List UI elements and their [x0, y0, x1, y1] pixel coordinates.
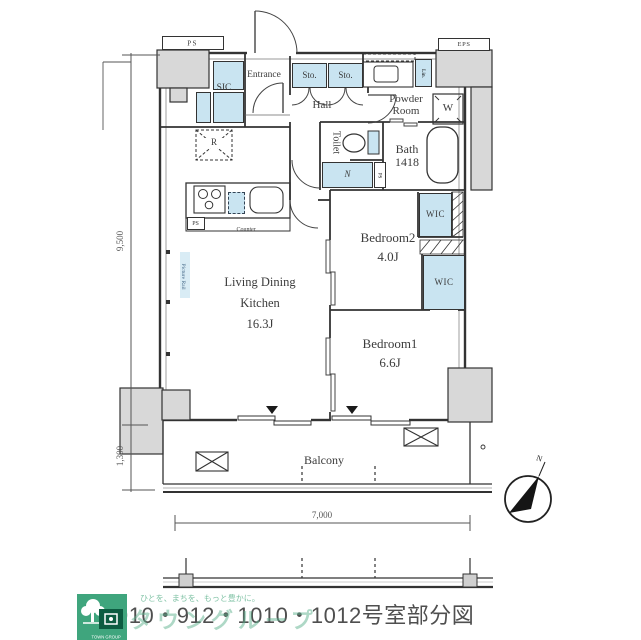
floorplan: Sto. Sto. Lin. N PS WIC WIC PS EPS SIC E… [0, 0, 641, 640]
entrance-label: Entrance [240, 70, 288, 80]
sic-shelf [196, 92, 211, 123]
dim-width-bottom: 7,000 [300, 511, 344, 521]
dishwasher [228, 192, 245, 214]
ldk-label: Living Dining Kitchen 16.3J [200, 272, 320, 335]
sic-shelf [213, 92, 244, 123]
bedroom2-label: Bedroom2 4.0J [338, 228, 438, 266]
picture-rail-label: Picture Rail [176, 250, 194, 304]
storage-left-label: Sto. [302, 71, 316, 81]
storage-box-left: Sto. [292, 63, 327, 88]
toilet-tank [368, 131, 379, 154]
floorplan-linework [0, 0, 641, 640]
washer-label: W [438, 102, 458, 114]
toilet-bowl [343, 134, 365, 152]
toilet-label: Toilet [331, 123, 342, 163]
storage-right-label: Sto. [338, 71, 352, 81]
dim-height-balcony: 1,300 [116, 436, 126, 476]
wic-lower-label: WIC [435, 278, 454, 288]
sic-label: SIC [204, 83, 244, 93]
ps-kitchen-label: PS [187, 217, 205, 230]
linen-closet: Lin. [415, 59, 432, 87]
n-storage-label: N [344, 170, 350, 180]
eps-label: EPS [438, 38, 490, 51]
balcony-label: Balcony [284, 454, 364, 467]
watermark-brand: タウングループ [130, 603, 318, 635]
wic-upper-label: WIC [426, 210, 445, 220]
counter-label: Counter [218, 219, 274, 237]
town-group-logo: TOWN GROUP [77, 594, 127, 640]
dim-height-main: 9,500 [116, 221, 126, 261]
railing-section [163, 558, 493, 587]
ac-unit [404, 428, 438, 446]
ps-top-label: PS [162, 36, 224, 50]
powder-room-label: Powder Room [378, 93, 434, 117]
pipe-shaft-label: PS [377, 172, 383, 178]
fridge-label: R [204, 138, 224, 148]
ac-unit [196, 452, 228, 471]
bedroom1-label: Bedroom1 6.6J [340, 334, 440, 372]
logo-mark [99, 609, 123, 629]
bath-label: Bath 1418 [385, 143, 429, 169]
logo-text: TOWN GROUP [92, 635, 113, 640]
linen-label: Lin. [420, 68, 426, 77]
hall-label: Hall [303, 99, 341, 111]
compass-icon [505, 462, 551, 522]
storage-box-right: Sto. [328, 63, 363, 88]
n-storage-box: N [322, 162, 373, 188]
